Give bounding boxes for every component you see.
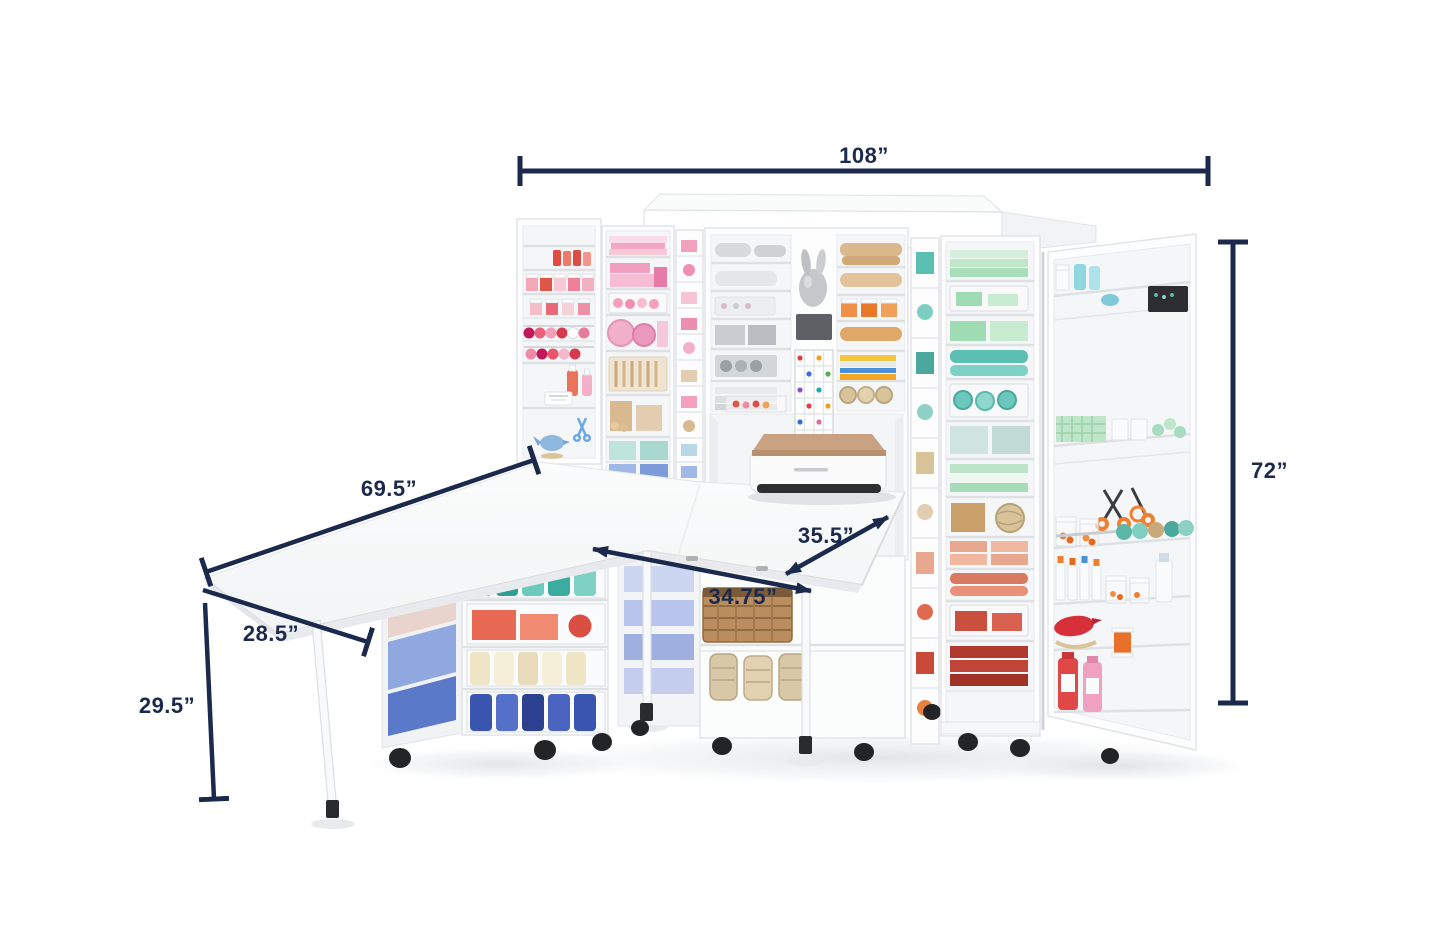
red-bin [950,605,1028,636]
table-leg [802,588,810,738]
aqua-tumblers [1056,264,1100,290]
table-leg [312,620,336,802]
dark-yarn-bin [796,314,832,340]
aqua-rosettes-bin [950,384,1028,417]
caster-wheel [389,748,411,768]
caster-wheel [1101,748,1119,764]
black-storage-box [1148,286,1188,312]
small-cubby-column-left [676,230,703,482]
cricut-base [757,484,881,493]
mint-box [950,321,986,341]
product-dimension-diagram: 108” 72” 69.5” 28.5” 29.5” 35.5” 34.75” [0,0,1445,936]
tan-craft-bins [610,401,662,432]
pink-tissue-stack [609,236,667,255]
scene: 108” 72” 69.5” 28.5” 29.5” 35.5” 34.75” [0,0,1445,936]
caster-wheel [712,737,732,755]
bead-bins-row [726,396,786,412]
mint-grid-paper-stack [1056,416,1106,442]
right-cabinet [941,236,1040,757]
small-cubby-column-right [911,238,941,744]
coral-bin-row [467,604,605,644]
table-leg [643,551,651,705]
mint-box [990,321,1028,341]
cricut-logo [794,468,828,472]
dimension-label-table-height: 29.5” [139,693,195,718]
twine-rope-spools [710,654,806,700]
mint-paper-stack [950,250,1028,277]
caster-wheel [958,733,978,751]
teal-yarn-rolls [950,350,1028,376]
twine-spool-row [840,387,892,403]
caster-wheel [592,733,612,751]
leg-foot [799,736,812,754]
dimension-table-height: 29.5” [139,603,214,799]
caster-wheel [1010,739,1030,757]
caster-wheel [923,704,941,720]
mint-white-stack [950,464,1028,492]
dimension-label-front-table-width: 34.75” [708,584,777,609]
mint-bin [950,286,1028,311]
dimension-overall-height: 72” [1233,242,1288,703]
orange-thread-spool [1112,628,1133,657]
spray-bottle-cap [1159,553,1169,562]
leg-foot [640,703,653,721]
label-plaque [545,392,572,405]
white-spray-bottle [1156,560,1172,602]
left-cabinet-pink [602,226,674,482]
dimension-label-front-table-depth: 35.5” [798,523,854,548]
dimension-label-side-table-depth: 28.5” [243,621,299,646]
left-door-panel [517,219,601,464]
dimension-label-overall-height: 72” [1251,458,1288,483]
clothespin-bins [609,357,667,391]
caster-wheel [631,720,649,736]
caster-wheel [854,743,874,761]
red-folder-stacks [950,646,1028,686]
caster-wheel [534,740,556,760]
right-door-panel [1043,234,1196,764]
dimension-label-overall-width: 108” [839,143,889,168]
pink-pom-bin [609,293,667,313]
under-table-bins-column [618,556,700,736]
cricut-machine [748,434,896,505]
leg-foot [326,800,339,818]
dimension-label-side-table-length: 69.5” [361,476,417,501]
cricut-rose-gold-lid [752,434,886,452]
blue-spool-row [467,692,605,732]
cream-spool-row [467,650,605,686]
aqua-butterfly [1101,294,1119,306]
dimension-overall-width: 108” [520,143,1208,171]
